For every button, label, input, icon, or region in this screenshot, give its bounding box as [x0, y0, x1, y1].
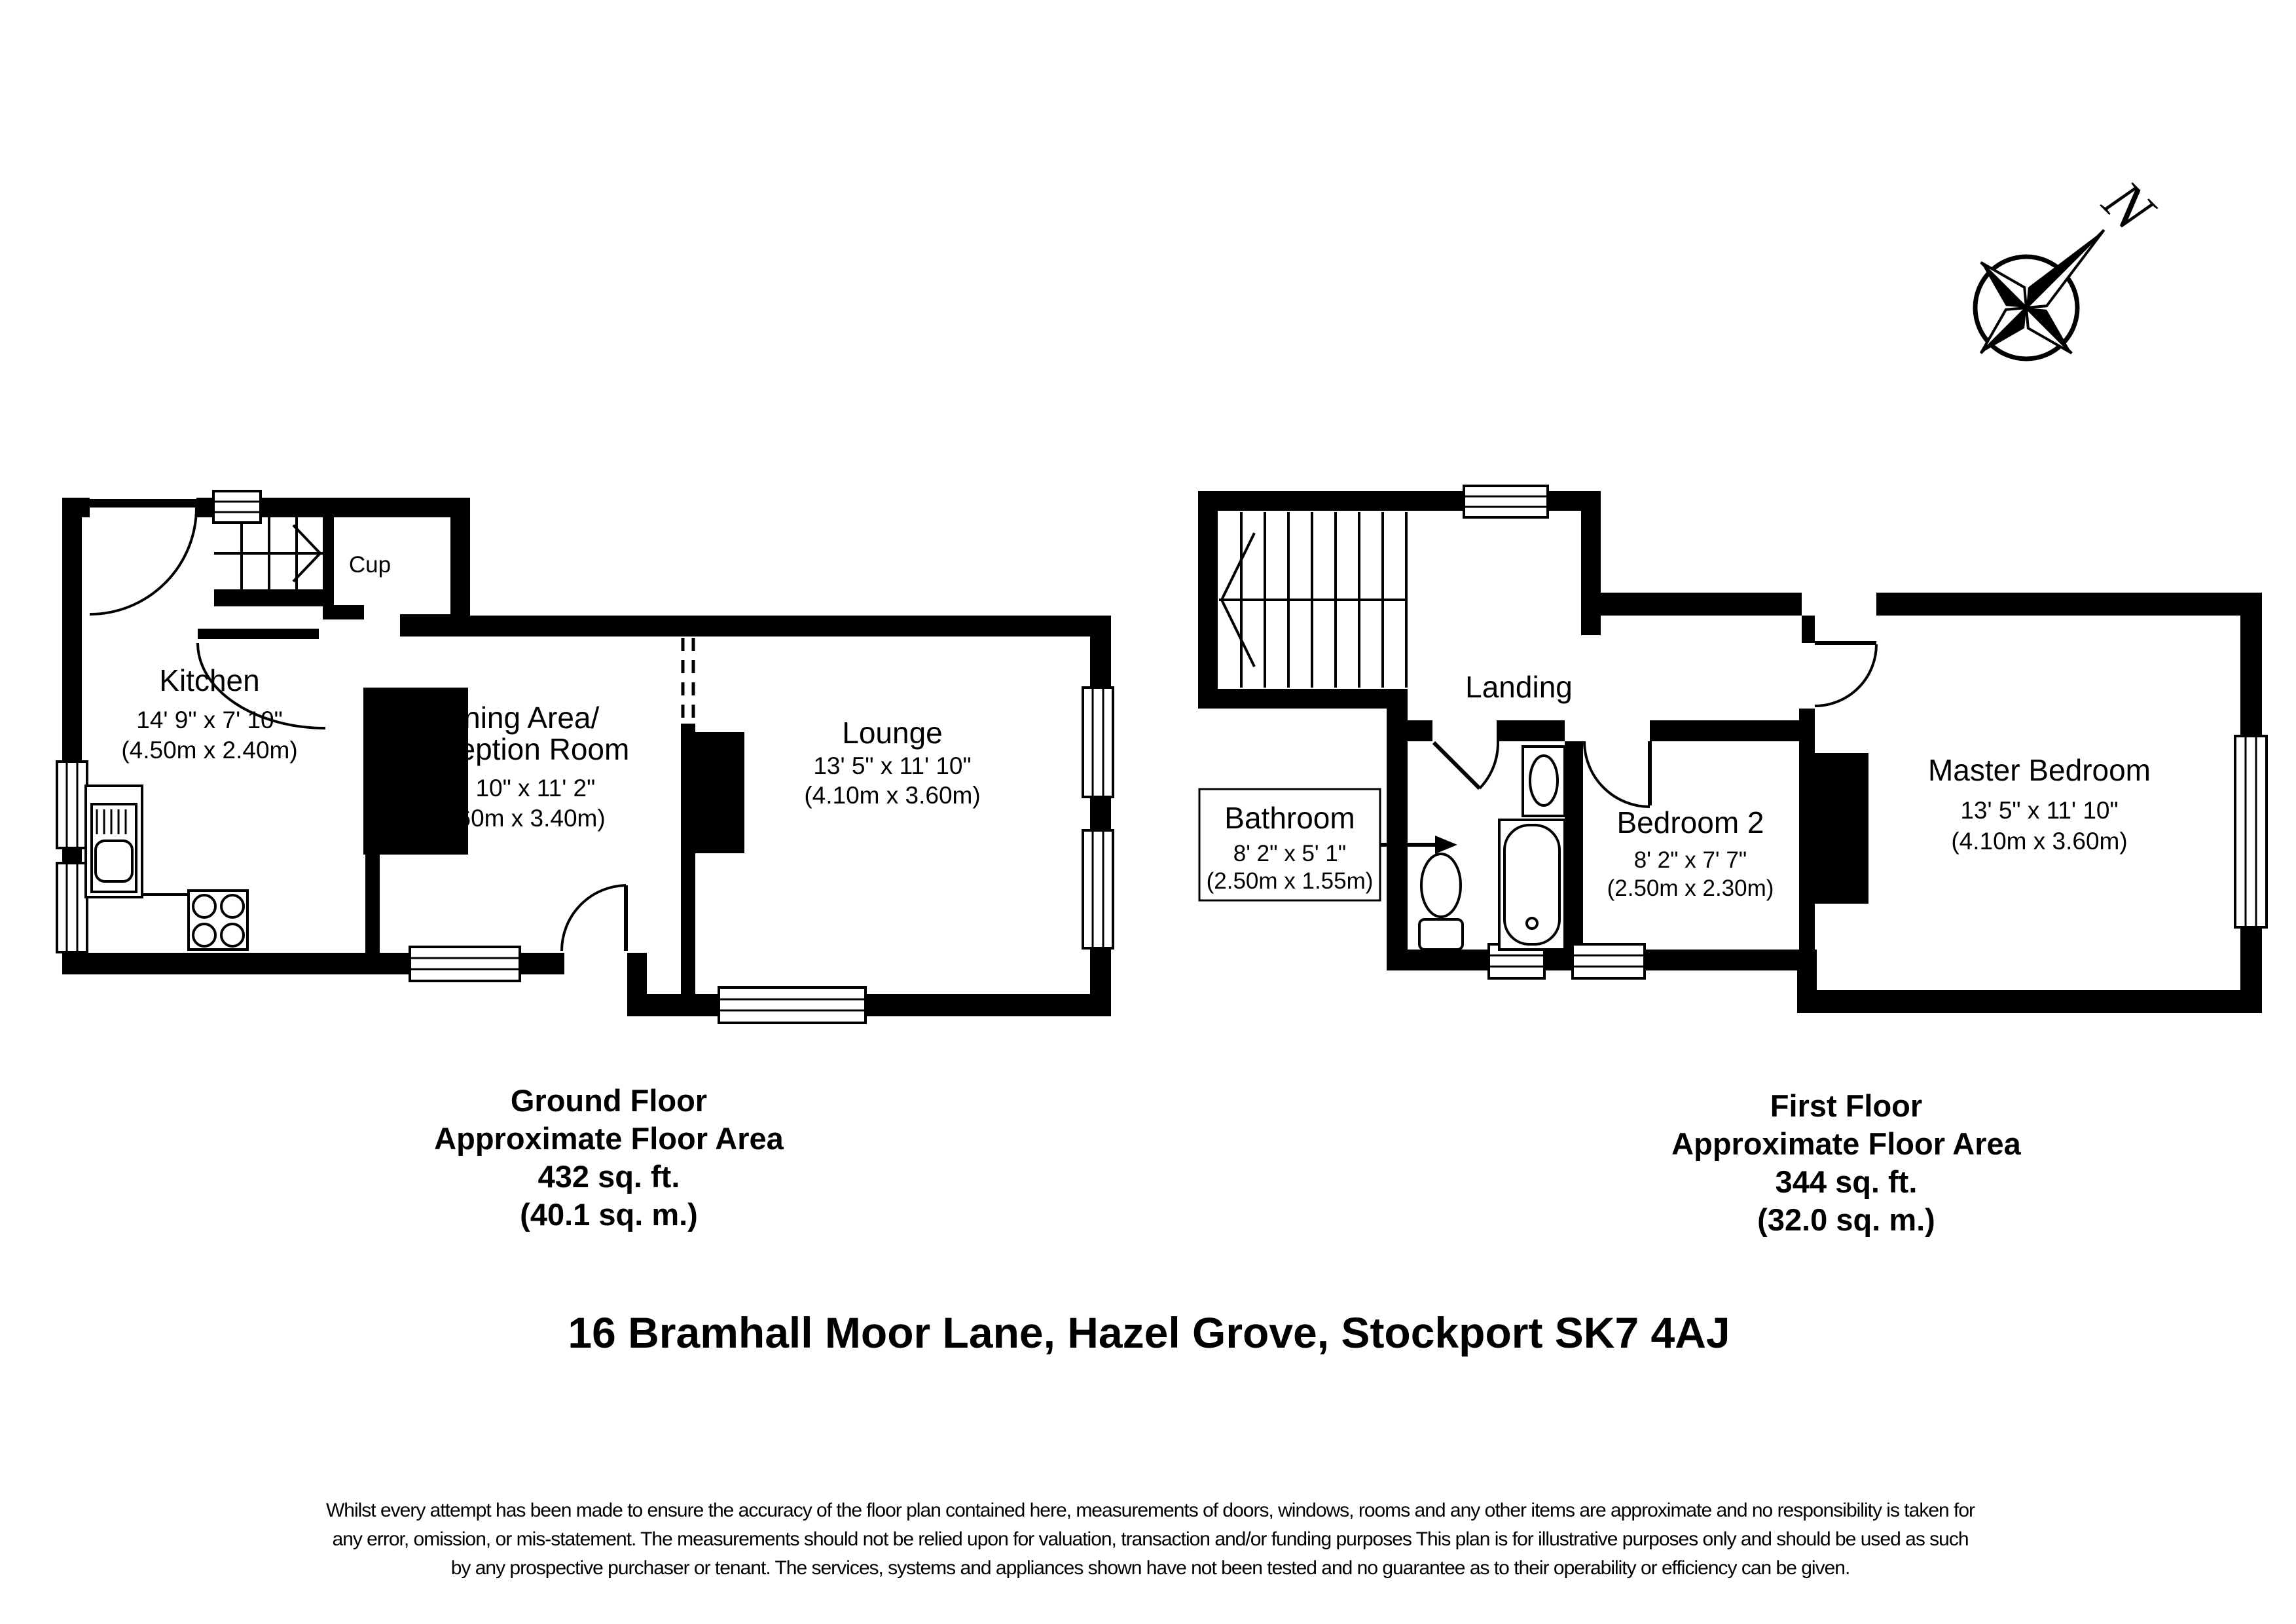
compass-north-light — [2026, 230, 2113, 317]
window — [410, 947, 520, 981]
wall — [1802, 616, 1815, 643]
first-floor-caption: First Floor Approximate Floor Area 344 s… — [1671, 1088, 2021, 1237]
wall — [1565, 741, 1583, 950]
window — [1083, 688, 1113, 797]
wall — [1497, 720, 1565, 741]
first-floor-caption-line1: First Floor — [1770, 1088, 1922, 1123]
kitchen-fixtures — [86, 786, 247, 950]
dining-label-line1: Dining Area/ — [435, 701, 600, 735]
floorplan-page: N — [0, 0, 2296, 1624]
lounge-label: Lounge — [842, 716, 943, 750]
ground-floor-stairs — [214, 517, 323, 589]
bathroom-label: Bathroom — [1224, 801, 1355, 835]
landing-label: Landing — [1465, 670, 1573, 704]
dining-dims-metric: (3.60m x 3.40m) — [429, 805, 605, 832]
lounge-dims-metric: (4.10m x 3.60m) — [804, 782, 980, 809]
disclaimer-line3: by any prospective purchaser or tenant. … — [451, 1557, 1850, 1579]
wall — [1799, 709, 1815, 951]
compass-north-dark — [2017, 221, 2104, 308]
cupboard-label: Cup — [349, 552, 391, 578]
window — [719, 987, 866, 1023]
wall — [681, 724, 695, 994]
window — [2235, 736, 2267, 927]
kitchen-dims-imperial: 14' 9" x 7' 10" — [136, 707, 282, 733]
stair-divider-wall — [323, 512, 334, 619]
chimney-breast — [1815, 753, 1868, 904]
wall — [400, 616, 1111, 637]
dining-label-line2: Reception Room — [405, 732, 630, 766]
wall — [62, 953, 411, 974]
bedroom2-door — [1584, 741, 1650, 807]
ground-floor-caption-line1: Ground Floor — [511, 1083, 707, 1118]
first-floor-stairs — [1219, 512, 1406, 688]
wall — [1876, 593, 2262, 616]
wall — [1387, 709, 1408, 970]
compass-rose: N — [1935, 136, 2197, 398]
wall — [1198, 491, 1218, 709]
first-floor-caption-line3: 344 sq. ft. — [1776, 1164, 1918, 1199]
disclaimer-line2: any error, omission, or mis-statement. T… — [332, 1528, 1968, 1550]
window — [213, 491, 261, 523]
dining-back-door — [562, 885, 626, 951]
master-bedroom-label: Master Bedroom — [1928, 753, 2151, 787]
first-floor-walls — [1198, 491, 2262, 1013]
wall — [1198, 689, 1408, 709]
bedroom2-dims-metric: (2.50m x 2.30m) — [1607, 876, 1774, 901]
bathroom-door — [1434, 741, 1498, 788]
lounge-dims-imperial: 13' 5" x 11' 10" — [813, 752, 971, 779]
bathroom-callout-arrowhead — [1435, 836, 1457, 854]
bedroom2-label: Bedroom 2 — [1616, 805, 1764, 840]
entrance-door — [90, 499, 196, 614]
ground-floor-caption-line3: 432 sq. ft. — [538, 1159, 680, 1194]
bath — [1499, 820, 1565, 950]
dining-lounge-opening — [683, 638, 693, 722]
bedroom2-dims-imperial: 8' 2" x 7' 7" — [1634, 847, 1747, 873]
wall — [519, 953, 564, 974]
wall — [450, 498, 470, 616]
property-address-title: 16 Bramhall Moor Lane, Hazel Grove, Stoc… — [568, 1308, 1730, 1357]
ground-floor-plan: Kitchen 14' 9" x 7' 10" (4.50m x 2.40m) … — [57, 491, 1113, 1232]
first-floor-caption-line4: (32.0 sq. m.) — [1757, 1202, 1935, 1237]
wall — [1650, 720, 1799, 741]
wall — [214, 589, 323, 606]
disclaimer-text: Whilst every attempt has been made to en… — [326, 1500, 1975, 1579]
wall — [1544, 950, 1573, 970]
chimney-breast — [695, 732, 744, 853]
floorplan-canvas: N — [0, 0, 2296, 1624]
kitchen-label: Kitchen — [159, 663, 259, 697]
disclaimer-line1: Whilst every attempt has been made to en… — [326, 1500, 1975, 1521]
window — [57, 863, 87, 952]
first-floor-caption-line2: Approximate Floor Area — [1671, 1126, 2021, 1161]
toilet — [1419, 854, 1463, 950]
wall — [1797, 990, 2262, 1013]
wall — [365, 855, 380, 954]
master-bedroom-dims-imperial: 13' 5" x 11' 10" — [1960, 797, 2118, 824]
window — [1573, 944, 1645, 978]
wall — [627, 994, 1111, 1016]
wall — [1090, 616, 1111, 1016]
dining-dims-imperial: 11' 10" x 11' 2" — [439, 775, 596, 802]
ground-floor-caption: Ground Floor Approximate Floor Area 432 … — [434, 1083, 784, 1232]
wall — [1387, 950, 1489, 970]
window — [1083, 830, 1113, 948]
wash-basin — [1523, 747, 1565, 816]
wall — [333, 605, 364, 619]
window — [57, 762, 87, 848]
kitchen-sink — [86, 786, 142, 897]
ground-floor-caption-line4: (40.1 sq. m.) — [520, 1197, 698, 1232]
window — [1464, 486, 1548, 517]
wall — [1406, 720, 1432, 741]
kitchen-dims-metric: (4.50m x 2.40m) — [121, 737, 297, 764]
bathroom-dims-metric: (2.50m x 1.55m) — [1207, 868, 1374, 894]
bathroom-callout: Bathroom 8' 2" x 5' 1" (2.50m x 1.55m) — [1199, 789, 1457, 900]
wall — [1581, 593, 1802, 616]
bathroom-dims-imperial: 8' 2" x 5' 1" — [1233, 841, 1346, 866]
wall — [1645, 950, 1799, 970]
kitchen-counter — [142, 786, 189, 895]
hob — [189, 891, 247, 950]
master-bedroom-door — [1815, 643, 1876, 706]
ground-floor-caption-line2: Approximate Floor Area — [434, 1121, 784, 1156]
master-bedroom-dims-metric: (4.10m x 3.60m) — [1951, 828, 2127, 855]
first-floor-plan: Bathroom 8' 2" x 5' 1" (2.50m x 1.55m) L… — [1198, 486, 2267, 1237]
